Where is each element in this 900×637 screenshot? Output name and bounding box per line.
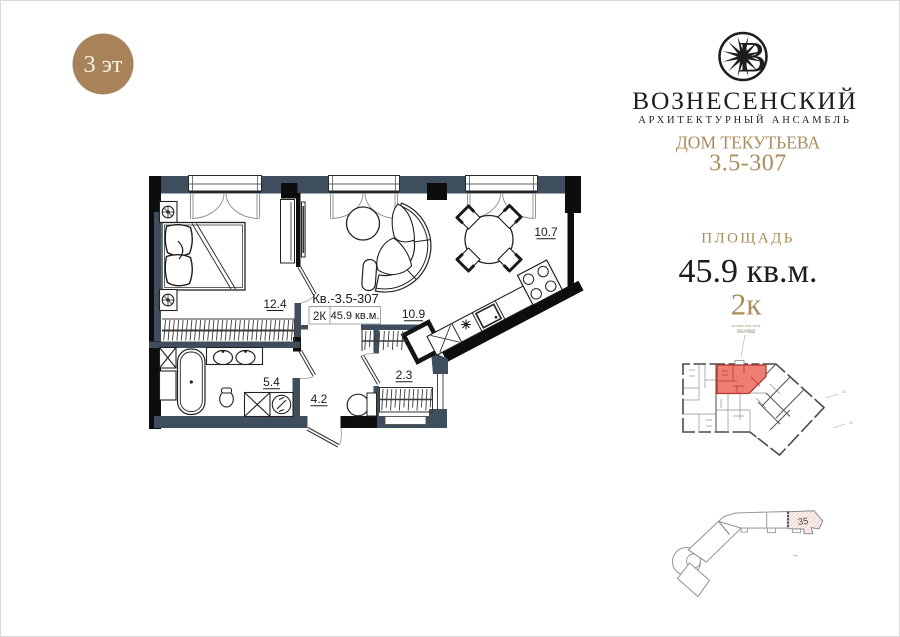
svg-text:5.4: 5.4 — [263, 375, 280, 389]
svg-text:35: 35 — [797, 516, 809, 528]
svg-text:ДОМ ТЕКУТЬЕВА: ДОМ ТЕКУТЬЕВА — [676, 133, 821, 153]
svg-text:2.3: 2.3 — [396, 368, 413, 382]
svg-text:3 эт: 3 эт — [84, 52, 123, 78]
svg-text:4.2: 4.2 — [311, 392, 328, 406]
svg-text:3.5-307: 3.5-307 — [709, 151, 787, 177]
svg-text:45.9 кв.м.: 45.9 кв.м. — [678, 253, 817, 290]
svg-text:2к: 2к — [731, 287, 763, 322]
svg-text:ВОЗНЕСЕНСКИЙ: ВОЗНЕСЕНСКИЙ — [632, 86, 858, 115]
svg-text:план этажа: план этажа — [737, 330, 755, 334]
svg-text:В: В — [738, 35, 767, 82]
svg-text:10.9: 10.9 — [402, 307, 426, 321]
svg-text:12.4: 12.4 — [263, 297, 287, 311]
svg-text:Кв.-3.5-307: Кв.-3.5-307 — [312, 291, 379, 306]
svg-text:45.9 кв.м.: 45.9 кв.м. — [331, 310, 380, 322]
svg-text:АРХИТЕКТУРНЫЙ АНСАМБЛЬ: АРХИТЕКТУРНЫЙ АНСАМБЛЬ — [638, 114, 851, 126]
svg-text:2К: 2К — [313, 311, 326, 323]
svg-text:10.7: 10.7 — [534, 225, 558, 239]
svg-text:35: 35 — [842, 390, 846, 394]
svg-text:ПЛОЩАДЬ: ПЛОЩАДЬ — [701, 231, 794, 247]
svg-text:34: 34 — [849, 421, 853, 425]
